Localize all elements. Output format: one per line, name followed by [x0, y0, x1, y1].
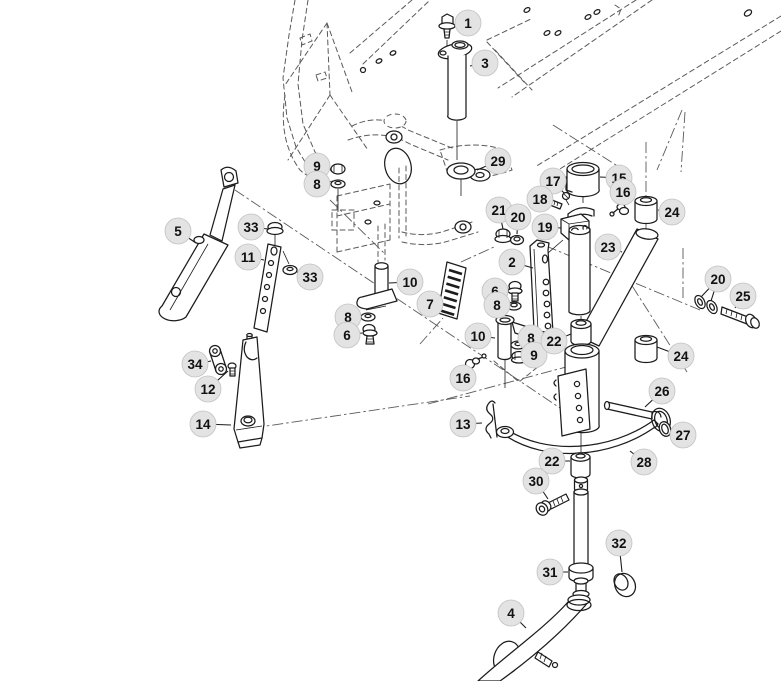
part-33-nut — [267, 223, 283, 248]
callout-19[interactable]: 19 — [532, 214, 558, 240]
callout-30[interactable]: 30 — [523, 468, 549, 494]
svg-text:9: 9 — [530, 348, 538, 363]
svg-text:18: 18 — [532, 192, 548, 207]
part-24-bushing-right — [635, 336, 657, 363]
part-8-washer-left — [361, 313, 375, 321]
svg-text:22: 22 — [544, 454, 559, 469]
diagram-drawing: 1329985331133107861715161821201922324202… — [0, 0, 781, 681]
svg-text:33: 33 — [302, 270, 318, 285]
svg-text:31: 31 — [542, 565, 558, 580]
callout-23[interactable]: 23 — [595, 234, 621, 260]
svg-text:23: 23 — [600, 240, 616, 255]
part-31-shaft — [569, 489, 593, 606]
callout-8[interactable]: 8 — [484, 292, 510, 318]
part-2-channel-bracket — [530, 240, 553, 333]
callout-10[interactable]: 10 — [465, 323, 491, 349]
part-29-washer — [447, 163, 475, 196]
svg-text:25: 25 — [735, 289, 751, 304]
parts-diagram-canvas: 1329985331133107861715161821201922324202… — [0, 0, 781, 681]
callout-20[interactable]: 20 — [705, 266, 731, 292]
part-12-pin — [228, 363, 236, 376]
pivot-housing — [554, 344, 599, 452]
callout-11[interactable]: 11 — [235, 244, 261, 270]
part-7-serrated-plate — [438, 262, 466, 319]
callout-16[interactable]: 16 — [450, 365, 476, 391]
callout-22[interactable]: 22 — [541, 328, 567, 354]
svg-text:30: 30 — [528, 474, 543, 489]
callout-18[interactable]: 18 — [527, 186, 553, 212]
part-15-cap — [566, 163, 599, 197]
crank-tube — [569, 226, 590, 315]
callout-24[interactable]: 24 — [668, 343, 694, 369]
callout-31[interactable]: 31 — [537, 559, 563, 585]
part-8-washer-upper — [331, 180, 345, 188]
svg-text:16: 16 — [615, 185, 631, 200]
svg-text:29: 29 — [490, 154, 505, 169]
part-20-washers-right — [693, 294, 720, 316]
svg-text:8: 8 — [313, 177, 321, 192]
callout-33[interactable]: 33 — [238, 214, 264, 240]
svg-text:26: 26 — [654, 384, 670, 399]
part-10-pin-left — [357, 263, 397, 310]
svg-text:24: 24 — [664, 205, 680, 220]
callout-25[interactable]: 25 — [730, 283, 756, 309]
svg-text:8: 8 — [493, 298, 501, 313]
callout-6[interactable]: 6 — [334, 322, 360, 348]
part-9-nut-upper — [331, 164, 345, 174]
svg-text:12: 12 — [200, 382, 215, 397]
part-30-bolt — [534, 494, 569, 517]
callout-32[interactable]: 32 — [606, 530, 632, 556]
part-34-link — [210, 346, 227, 375]
part-5-cylinder — [159, 167, 238, 320]
callout-26[interactable]: 26 — [649, 378, 675, 404]
svg-text:14: 14 — [195, 417, 211, 432]
callout-12[interactable]: 12 — [195, 376, 221, 402]
callout-28[interactable]: 28 — [631, 449, 657, 475]
part-24-bushing-upper — [635, 197, 657, 224]
svg-text:17: 17 — [545, 174, 560, 189]
svg-text:28: 28 — [636, 455, 652, 470]
svg-text:11: 11 — [241, 250, 256, 265]
part-33-washer — [283, 251, 297, 275]
callout-16[interactable]: 16 — [610, 179, 636, 205]
svg-text:10: 10 — [402, 275, 417, 290]
part-6-bolt-left — [363, 325, 377, 345]
part-16-grease-fitting-upper — [610, 204, 629, 216]
part-25-bolt — [721, 307, 761, 330]
svg-text:10: 10 — [470, 329, 485, 344]
svg-text:13: 13 — [455, 417, 471, 432]
part-32-cap — [611, 570, 640, 601]
callout-2[interactable]: 2 — [499, 249, 525, 275]
svg-text:1: 1 — [464, 16, 472, 31]
svg-text:27: 27 — [675, 428, 690, 443]
callout-8[interactable]: 8 — [304, 171, 330, 197]
svg-text:22: 22 — [546, 334, 561, 349]
callout-29[interactable]: 29 — [485, 148, 511, 174]
svg-text:19: 19 — [537, 220, 552, 235]
callout-7[interactable]: 7 — [417, 291, 443, 317]
callout-13[interactable]: 13 — [450, 411, 476, 437]
svg-text:16: 16 — [455, 371, 471, 386]
svg-text:32: 32 — [611, 536, 626, 551]
part-3-pin — [437, 41, 473, 160]
svg-text:33: 33 — [243, 220, 259, 235]
part-22-bushing-lower — [571, 453, 590, 479]
callout-34[interactable]: 34 — [182, 351, 208, 377]
svg-text:5: 5 — [174, 224, 182, 239]
callout-4[interactable]: 4 — [498, 600, 524, 626]
svg-text:24: 24 — [673, 349, 689, 364]
callout-20[interactable]: 20 — [505, 204, 531, 230]
callout-27[interactable]: 27 — [670, 422, 696, 448]
callout-24[interactable]: 24 — [659, 199, 685, 225]
callout-10[interactable]: 10 — [397, 269, 423, 295]
part-4-curved-tube — [478, 595, 591, 681]
svg-text:6: 6 — [343, 328, 351, 343]
svg-text:3: 3 — [481, 56, 489, 71]
callout-33[interactable]: 33 — [297, 264, 323, 290]
svg-text:20: 20 — [510, 210, 525, 225]
part-14-lower-link — [234, 334, 264, 449]
svg-text:7: 7 — [426, 297, 434, 312]
callout-1[interactable]: 1 — [455, 10, 481, 36]
svg-text:20: 20 — [710, 272, 725, 287]
callout-14[interactable]: 14 — [190, 411, 216, 437]
part-17-screw — [563, 193, 570, 206]
part-20-washer-left — [511, 236, 524, 245]
part-21-nut — [495, 229, 511, 243]
part-13-hairpin-cotter — [486, 401, 497, 438]
svg-text:34: 34 — [187, 357, 203, 372]
svg-text:4: 4 — [507, 606, 515, 621]
callout-5[interactable]: 5 — [165, 218, 191, 244]
part-6-bolt-center — [508, 282, 522, 302]
callout-3[interactable]: 3 — [472, 50, 498, 76]
svg-text:2: 2 — [508, 255, 516, 270]
